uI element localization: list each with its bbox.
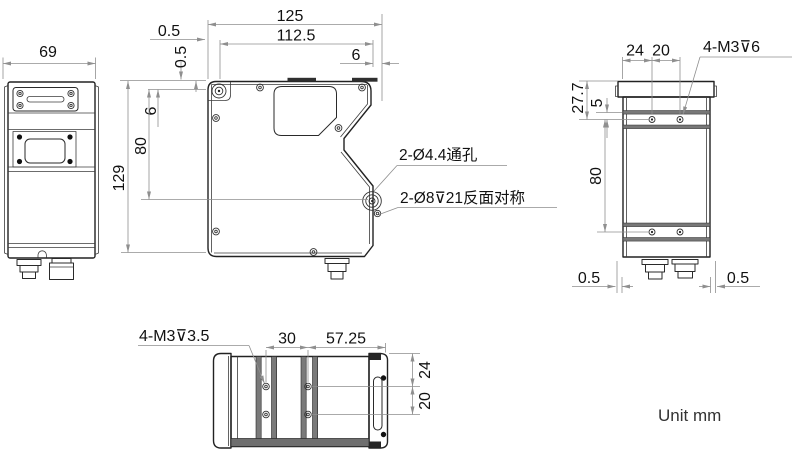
dim-label-top-offset-h: 0.5	[158, 23, 180, 40]
counterbore-hole	[363, 192, 382, 211]
dim-label-hole-col-1: 24	[626, 43, 644, 60]
front-screws	[213, 84, 366, 255]
dim-label-overall-width: 125	[277, 8, 304, 25]
bottom-connectors-left-view	[17, 259, 74, 280]
top-strip-left	[288, 78, 317, 82]
dim-label-top-offset-v: 0.5	[173, 46, 190, 68]
right-side-view: 24 20 4-M3⊽6 27.7 5 80 0.5 0.5	[570, 39, 792, 293]
optical-window	[13, 132, 76, 168]
dim-label-overall-height: 129	[111, 165, 128, 192]
dim-label-left-width: 69	[39, 44, 57, 61]
dim-label-top-to-hole: 27.7	[570, 82, 587, 113]
bottom-rails	[231, 357, 369, 447]
dim-label-hole-span: 80	[133, 137, 150, 155]
drawing-svg: 69	[0, 0, 799, 452]
dim-label-hole-span-right: 80	[588, 167, 605, 185]
dim-label-right-offset: 6	[352, 47, 361, 64]
front-dimensions: 125 112.5 6 0.5 0.5 6 80 129 2-Ø4.4通孔 2-…	[111, 8, 557, 253]
front-view: 125 112.5 6 0.5 0.5 6 80 129 2-Ø4.4通孔 2-…	[111, 8, 557, 279]
note-counterbore-holes: 2-Ø8⊽21反面对称	[400, 189, 525, 207]
dim-label-edge-to-hole: 24	[417, 361, 434, 379]
dim-label-rail-offset: 5	[589, 98, 606, 107]
bottom-view: 4-M3⊽3.5 30 57.25 24 20	[138, 328, 434, 448]
side-slot	[374, 377, 383, 430]
left-side-view: 69	[3, 44, 99, 280]
note-tapped-holes-right: 4-M3⊽6	[703, 39, 760, 56]
dim-label-inner-width: 112.5	[277, 28, 316, 45]
dim-left-width: 69	[3, 44, 96, 79]
dimension-drawing: 69	[0, 0, 799, 452]
dim-label-hole-col-span: 30	[278, 331, 296, 348]
right-dimensions: 24 20 4-M3⊽6 27.7 5 80 0.5 0.5	[570, 39, 792, 293]
through-hole	[374, 210, 380, 216]
bottom-connector-front-view	[325, 259, 349, 280]
dim-label-hole-col-2: 20	[652, 43, 670, 60]
bottom-notch	[38, 251, 46, 258]
dim-label-hole-top-offset: 6	[143, 106, 160, 115]
top-strip-right	[352, 78, 378, 82]
cap-corner-dark-top	[370, 354, 382, 360]
note-through-holes: 2-Ø4.4通孔	[399, 146, 478, 164]
cap-corner-dark-bottom	[370, 442, 382, 448]
dim-label-bottom-offset-right: 0.5	[727, 270, 749, 287]
io-connector-plate	[13, 88, 78, 112]
bottom-connectors-right-view	[642, 260, 698, 280]
dim-label-hole-row-span: 20	[417, 392, 434, 410]
unit-label: Unit mm	[658, 406, 721, 425]
bottom-dimensions: 4-M3⊽3.5 30 57.25 24 20	[138, 328, 434, 415]
lens-window	[274, 87, 337, 136]
dim-label-bottom-offset-left: 0.5	[578, 270, 600, 287]
note-tapped-holes-bottom: 4-M3⊽3.5	[139, 328, 210, 345]
dim-label-right-span: 57.25	[326, 331, 366, 348]
